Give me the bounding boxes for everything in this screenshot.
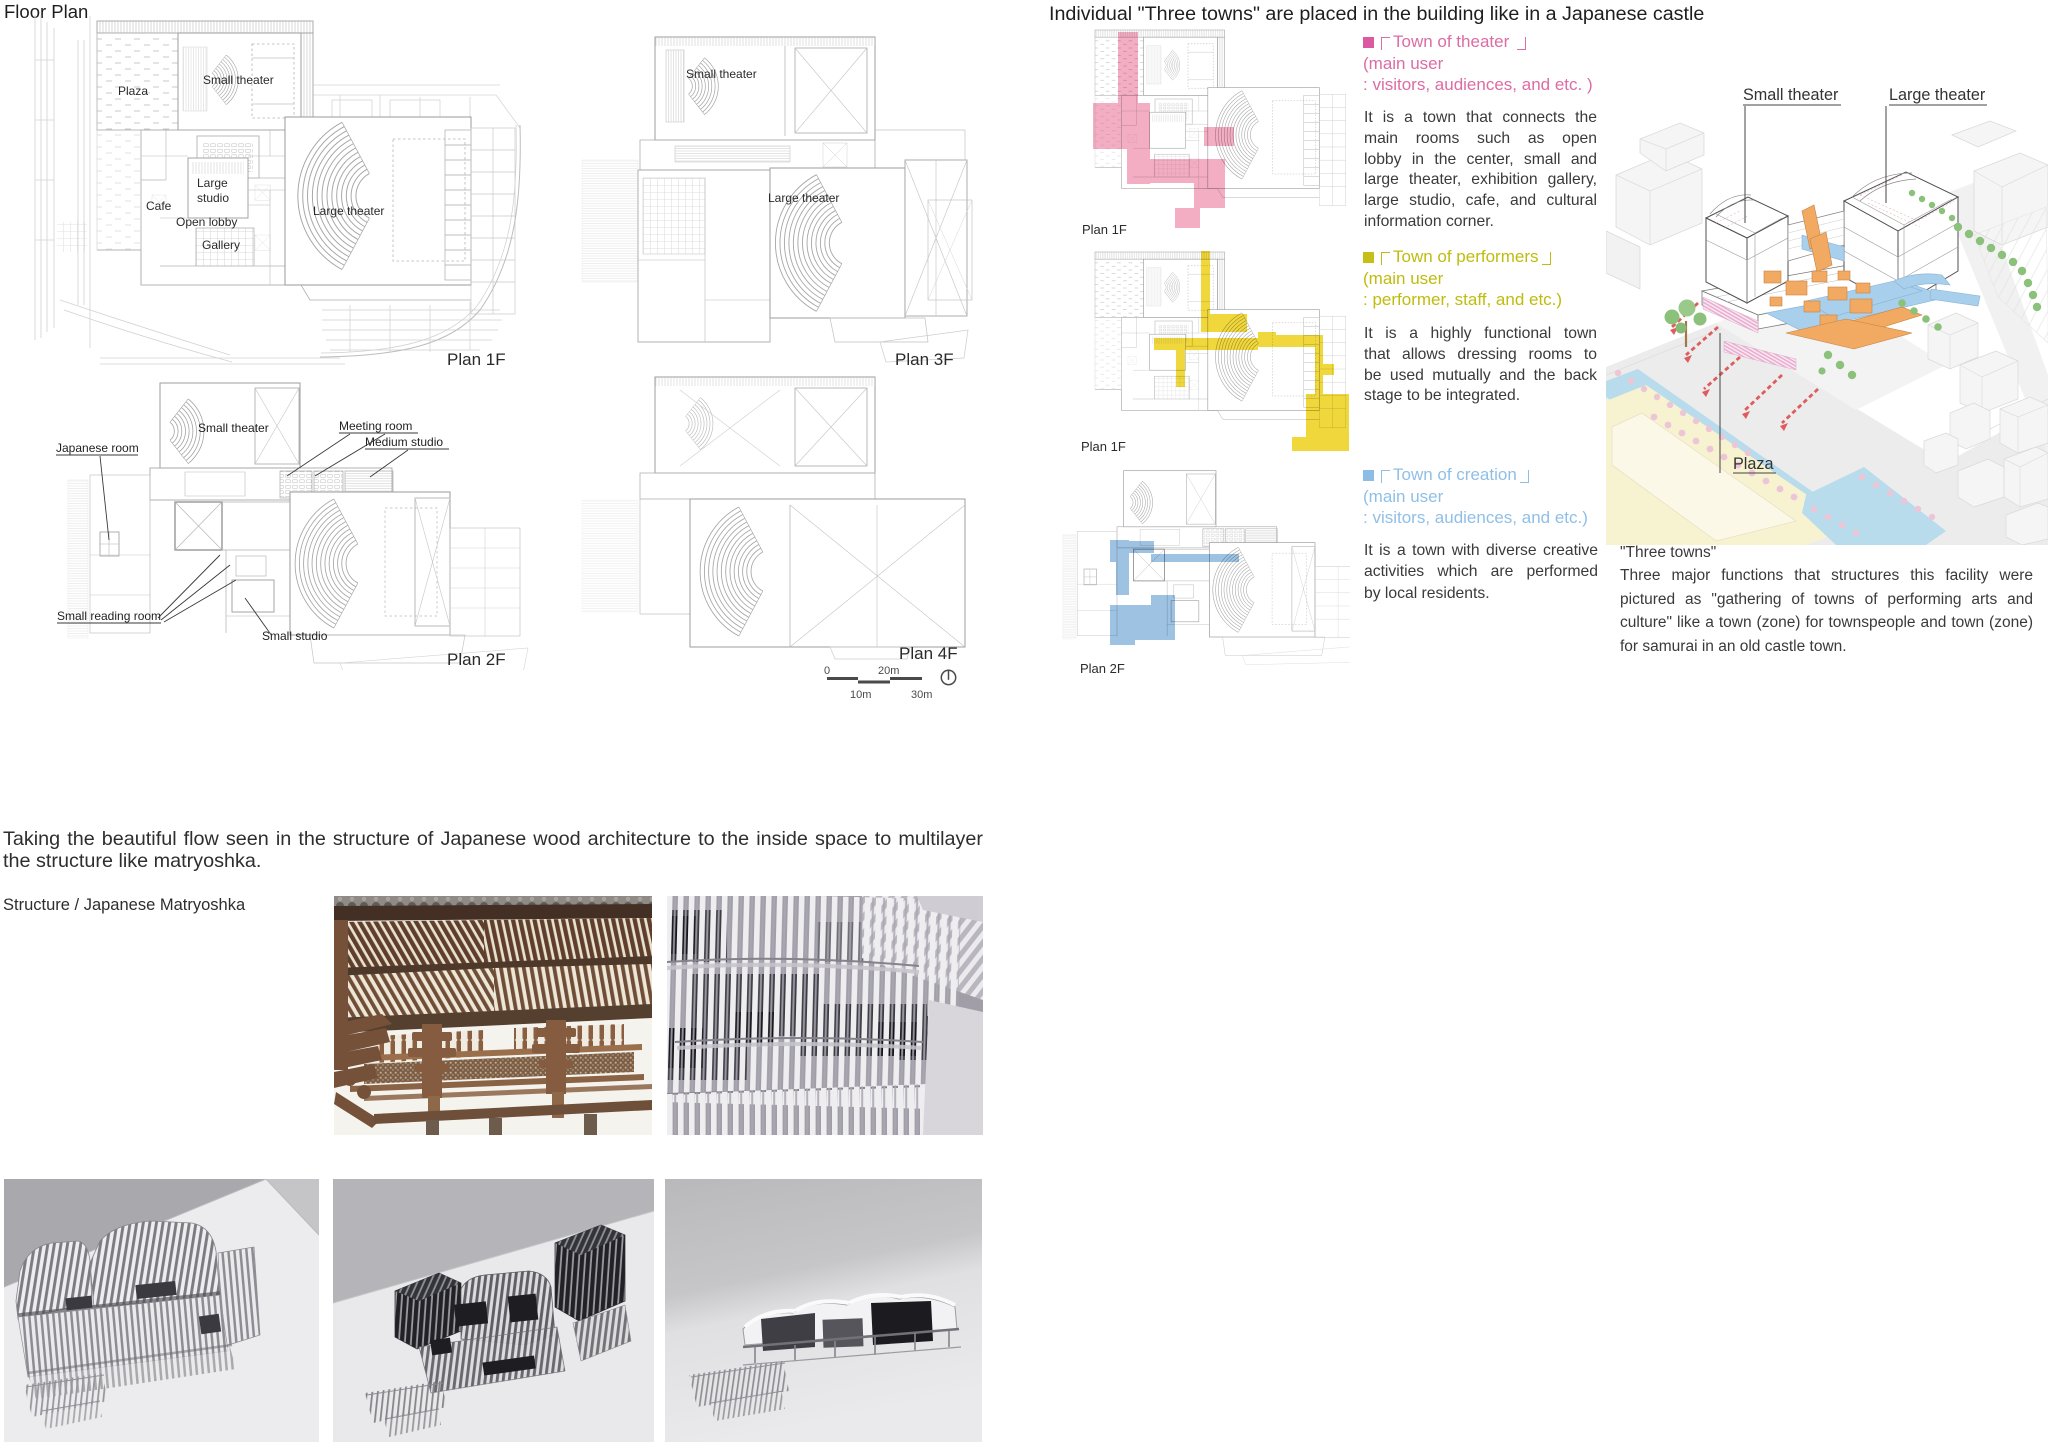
svg-text:Small theater: Small theater: [686, 67, 757, 81]
svg-text:Cafe: Cafe: [146, 199, 172, 213]
svg-text:Small theater: Small theater: [1743, 86, 1839, 104]
svg-text:studio: studio: [197, 191, 229, 205]
svg-text:Large theater: Large theater: [768, 191, 839, 205]
svg-text:Large: Large: [197, 176, 228, 190]
svg-text:30m: 30m: [911, 689, 932, 701]
svg-text:Small theater: Small theater: [203, 73, 274, 87]
svg-text:Open lobby: Open lobby: [176, 215, 237, 229]
svg-text:Japanese room: Japanese room: [56, 441, 139, 455]
svg-text:0: 0: [824, 665, 830, 677]
svg-text:Gallery: Gallery: [202, 238, 240, 252]
svg-text:Large theater: Large theater: [313, 204, 384, 218]
svg-text:Small reading room: Small reading room: [57, 609, 161, 623]
svg-text:10m: 10m: [850, 689, 871, 701]
svg-text:Large theater: Large theater: [1889, 86, 1986, 104]
svg-text:20m: 20m: [878, 665, 899, 677]
svg-text:Plaza: Plaza: [1733, 455, 1774, 473]
svg-text:Medium studio: Medium studio: [365, 435, 443, 449]
svg-text:Meeting room: Meeting room: [339, 419, 412, 433]
svg-text:Plaza: Plaza: [118, 84, 148, 98]
svg-text:Small theater: Small theater: [198, 421, 269, 435]
